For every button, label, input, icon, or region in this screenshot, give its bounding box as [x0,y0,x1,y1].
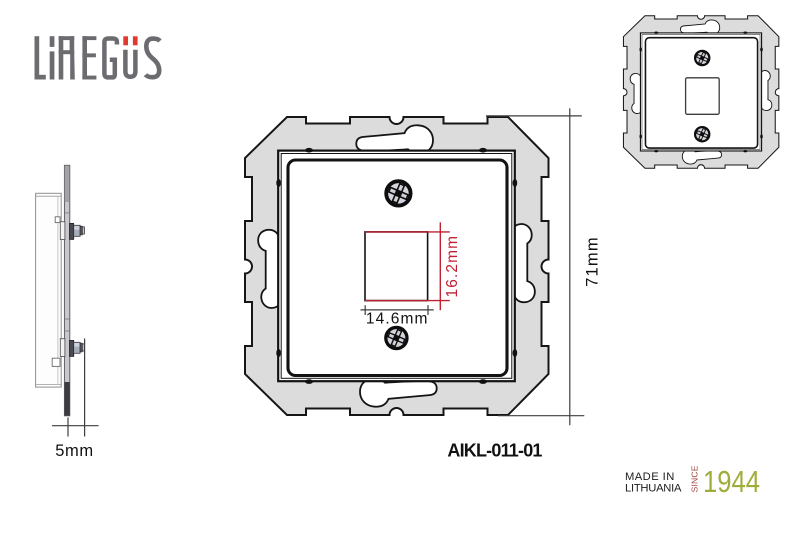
svg-text:16.2mm: 16.2mm [444,235,461,298]
svg-text:SINCE: SINCE [690,465,700,492]
svg-text:14.6mm: 14.6mm [366,310,429,327]
svg-text:1944: 1944 [703,464,760,499]
svg-text:LITHUANIA: LITHUANIA [625,483,682,495]
svg-text:71mm: 71mm [583,236,601,287]
svg-text:AIKL-011-01: AIKL-011-01 [447,441,542,461]
svg-text:5mm: 5mm [55,442,93,460]
svg-text:MADE IN: MADE IN [625,471,675,483]
